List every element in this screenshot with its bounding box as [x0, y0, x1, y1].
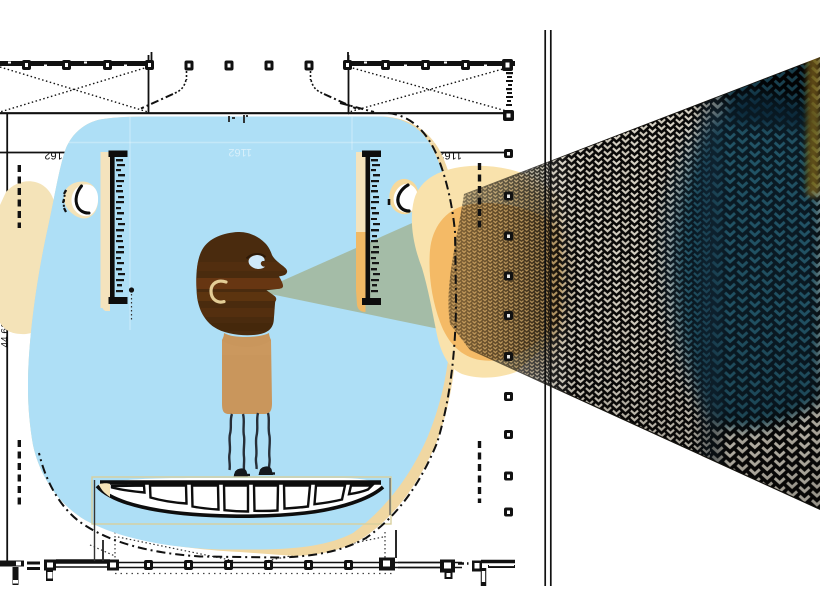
svg-text:1162: 1162 [228, 146, 252, 158]
